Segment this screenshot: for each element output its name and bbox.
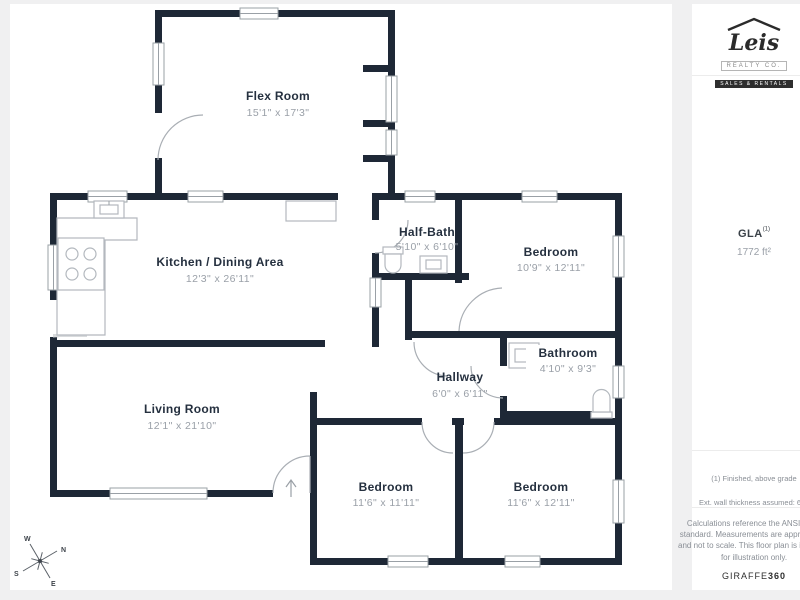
stove-icon [58, 238, 104, 290]
gla-label: GLA [738, 228, 763, 240]
wall-thickness-note: Ext. wall thickness assumed: 6 in [692, 498, 800, 507]
kitchen-sink-icon [94, 201, 124, 218]
sidebar-divider [692, 450, 800, 451]
room-dims: 5'10" x 6'10" [396, 241, 459, 253]
room-dims: 11'6" x 12'11" [507, 497, 574, 509]
gla-value: 1772 ft² [692, 247, 800, 258]
floor-plan-drawing: Flex Room 15'1" x 17'3" Kitchen / Dining… [0, 0, 800, 600]
compass-icon: N E S W [14, 536, 66, 588]
compass-label-w: W [24, 536, 31, 543]
brand-suffix: 360 [768, 571, 786, 581]
entry-arrow-icon [286, 480, 296, 497]
room-dims: 6'0" x 6'11" [432, 388, 488, 400]
halfbath-sink-icon [420, 256, 447, 273]
floor-plan-page: { "floor_plan": { "rooms": [ {"name": "F… [0, 0, 800, 600]
room-label: Kitchen / Dining Area [156, 255, 283, 269]
room-dims: 12'1" x 21'10" [147, 420, 216, 432]
sidebar-divider [692, 507, 800, 508]
compass-label-s: S [14, 571, 19, 578]
room-dims: 12'3" x 26'11" [186, 273, 254, 285]
room-dims: 10'9" x 12'11" [517, 262, 585, 274]
room-label: Bathroom [538, 346, 597, 360]
brand-name: GIRAFFE [722, 571, 768, 581]
giraffe360-logo: GIRAFFE360 [692, 571, 800, 581]
room-label: Flex Room [246, 89, 310, 103]
room-dims: 11'6" x 11'11" [353, 497, 420, 509]
bathroom-toilet-icon [591, 390, 612, 419]
leis-realty-logo: Leis REALTY CO. SALES & RENTALS [692, 4, 800, 76]
room-label: Hallway [437, 370, 484, 384]
room-label: Bedroom [514, 480, 569, 494]
compass-label-e: E [51, 581, 56, 588]
gla-section: GLA(1) 1772 ft² [692, 224, 800, 258]
room-dims: 15'1" x 17'3" [247, 107, 310, 119]
gla-footnote-marker: (1) [763, 227, 770, 233]
room-label: Bedroom [359, 480, 414, 494]
logo-tagline: SALES & RENTALS [715, 80, 792, 88]
compass-label-n: N [61, 547, 66, 554]
roof-icon [724, 16, 784, 31]
logo-name: Leis [692, 32, 800, 54]
disclaimer-text: Calculations reference the ANSI-Z765 sta… [674, 518, 800, 563]
info-sidebar: Leis REALTY CO. SALES & RENTALS GLA(1) 1… [692, 4, 800, 590]
room-label: Half-Bath [399, 225, 455, 239]
logo-subtitle: REALTY CO. [721, 61, 786, 71]
footnote-text: (1) Finished, above grade [692, 474, 800, 483]
room-label: Living Room [144, 402, 220, 416]
room-dims: 4'10" x 9'3" [540, 363, 597, 375]
room-label: Bedroom [524, 245, 579, 259]
kitchen-cabinet [286, 201, 336, 221]
doors-layer [53, 115, 503, 493]
